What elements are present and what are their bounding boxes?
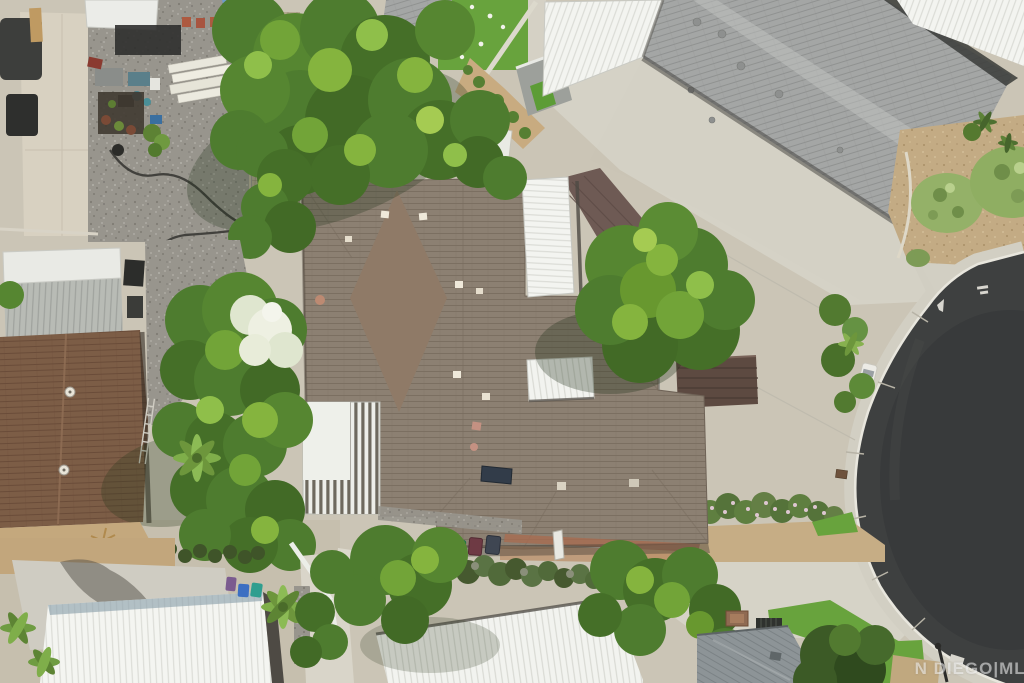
utility-box xyxy=(835,469,847,478)
left-middle xyxy=(0,240,316,573)
aerial-photo: N DIEGO|MLS xyxy=(0,0,1024,683)
white-post xyxy=(553,530,564,560)
lattice-pergola xyxy=(303,402,380,514)
mls-watermark: N DIEGO|MLS xyxy=(915,659,1024,679)
rv-storage xyxy=(0,8,43,136)
white-awning-a xyxy=(522,177,574,297)
palm-tree xyxy=(173,434,221,482)
aerial-scene xyxy=(0,0,1024,683)
bottom-strip xyxy=(0,525,747,683)
hose-reel xyxy=(112,144,124,156)
rooftop-panel xyxy=(481,466,512,484)
